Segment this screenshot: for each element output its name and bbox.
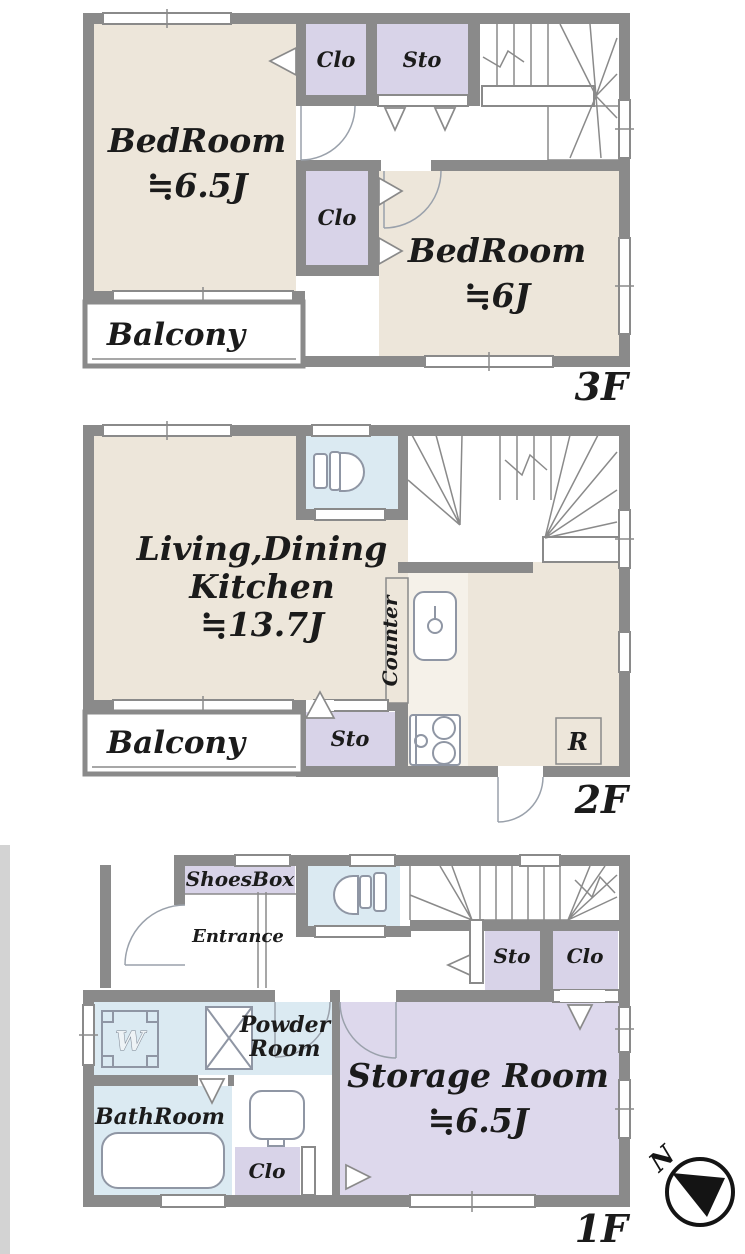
refrigerator-label: R [567, 727, 588, 756]
balcony-2f-label: Balcony [106, 725, 247, 761]
storage-room-size: ≒6.5J [428, 1101, 531, 1140]
exterior-door-arc [498, 777, 543, 822]
washer-label: W [115, 1027, 147, 1057]
closet-mid-label: Clo [318, 205, 357, 230]
closet-1f-lower-label: Clo [249, 1159, 286, 1183]
floor-2f-label: 2F [574, 777, 631, 822]
floor-3f-plan: BedRoom ≒6.5J BedRoom ≒6J Clo Sto Clo Ba… [0, 0, 745, 410]
ldk-size: ≒13.7J [200, 605, 326, 644]
bedroom-2-size: ≒6J [464, 276, 533, 315]
toilet-1f-icon [334, 873, 386, 914]
shoesbox-label: ShoesBox [186, 867, 296, 891]
powder-room-label-line2: Room [249, 1036, 321, 1062]
storage-room-area [340, 1002, 619, 1195]
storage-top-label: Sto [403, 47, 442, 72]
bathroom-label: BathRoom [94, 1104, 225, 1130]
bathtub-icon [102, 1133, 224, 1188]
ldk-label-line1: Living,Dining [136, 529, 388, 568]
closet-1f-upper-label: Clo [567, 944, 604, 968]
north-compass-icon: N [643, 1139, 733, 1225]
bedroom-1-size: ≒6.5J [147, 166, 250, 205]
floor-1f-plan: N ShoesBox Entrance Sto Clo W Powder Roo… [0, 835, 745, 1254]
storage-room-label: Storage Room [347, 1056, 609, 1095]
storage-1f-upper-label: Sto [493, 944, 530, 968]
balcony-3f-label: Balcony [106, 317, 247, 353]
kitchen-sink-icon [414, 592, 456, 660]
bedroom-2-label: BedRoom [407, 231, 586, 270]
bedroom-1-label: BedRoom [107, 121, 286, 160]
floor-2f-plan: Living,Dining Kitchen ≒13.7J Counter Sto… [0, 410, 745, 835]
site-edge-strip [0, 845, 10, 1254]
toilet-2f-icon [314, 452, 364, 491]
floor-1f-label: 1F [575, 1206, 631, 1251]
counter-label: Counter [378, 594, 402, 686]
floor-3f-label: 3F [575, 364, 631, 409]
ldk-label-line2: Kitchen [188, 567, 335, 606]
closet-top-label: Clo [317, 47, 356, 72]
storage-2f-label: Sto [331, 726, 370, 751]
washbasin-icon [250, 1091, 304, 1146]
powder-room-label-line1: Powder [239, 1012, 332, 1038]
entrance-label: Entrance [191, 926, 284, 947]
compass-north-label: N [643, 1139, 682, 1179]
floorplan-canvas: BedRoom ≒6.5J BedRoom ≒6J Clo Sto Clo Ba… [0, 0, 745, 1254]
